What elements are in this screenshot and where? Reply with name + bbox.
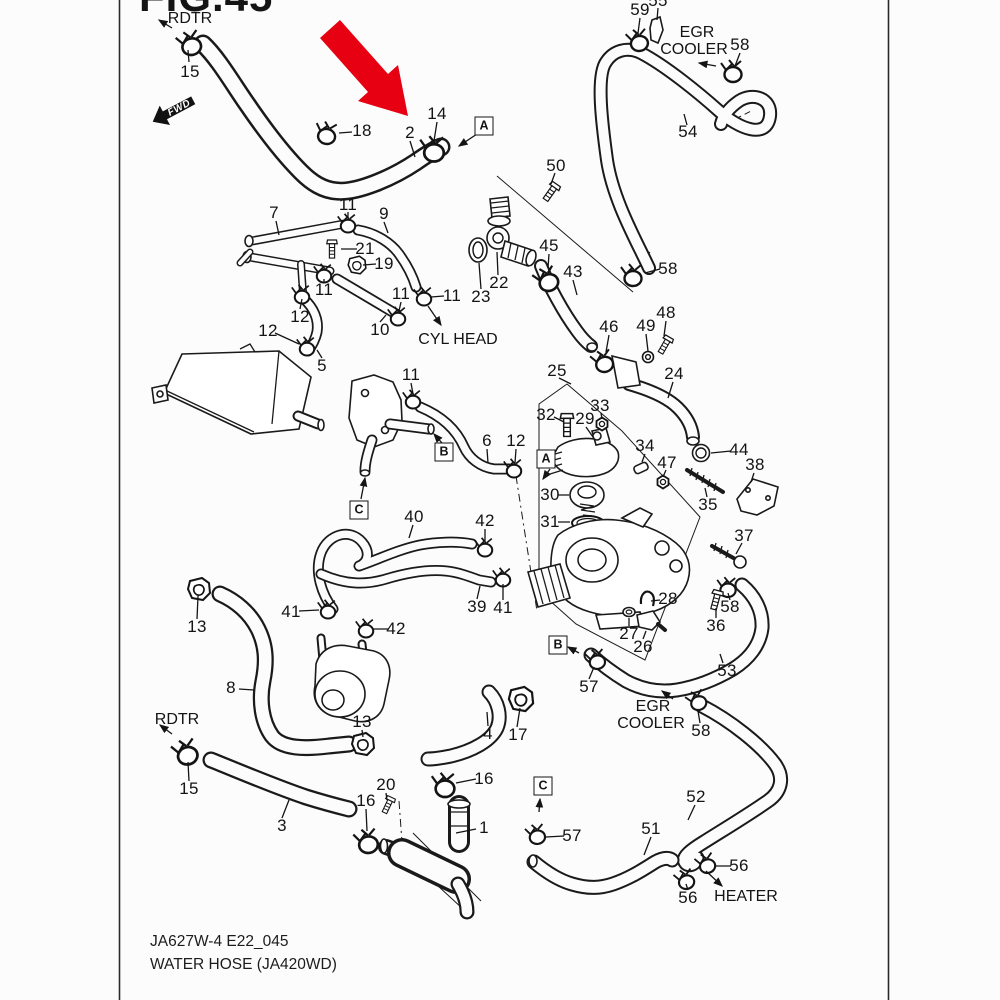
hose-52 [684,706,780,865]
hose-54 [601,50,771,268]
oil-cooler [314,638,390,722]
highlight-arrow [320,20,408,116]
hose-51 [529,855,672,887]
reservoir-tank [152,344,324,434]
hose-6 [420,407,509,469]
diagram-page: FIG.45 FWD JA627W-4 E22_045 WATER HOSE (… [0,0,1000,1000]
water-outlet-22 [469,197,538,267]
thermostat-housing [547,428,619,530]
bracket-b [349,375,434,476]
hose-39 [321,570,491,583]
pipe-assembly-7 [240,224,344,293]
bracket-55 [650,17,663,43]
fasteners [327,181,724,815]
hose-3 [211,760,349,809]
hose-24 [629,384,699,445]
hose-9 [358,230,416,287]
parts-diagram-drawing [0,0,1000,1000]
bracket-46 [612,356,640,388]
hose-2 [203,44,441,191]
hose-10 [337,279,396,314]
water-pipe-1 [381,800,471,912]
throttle-body [528,508,690,629]
